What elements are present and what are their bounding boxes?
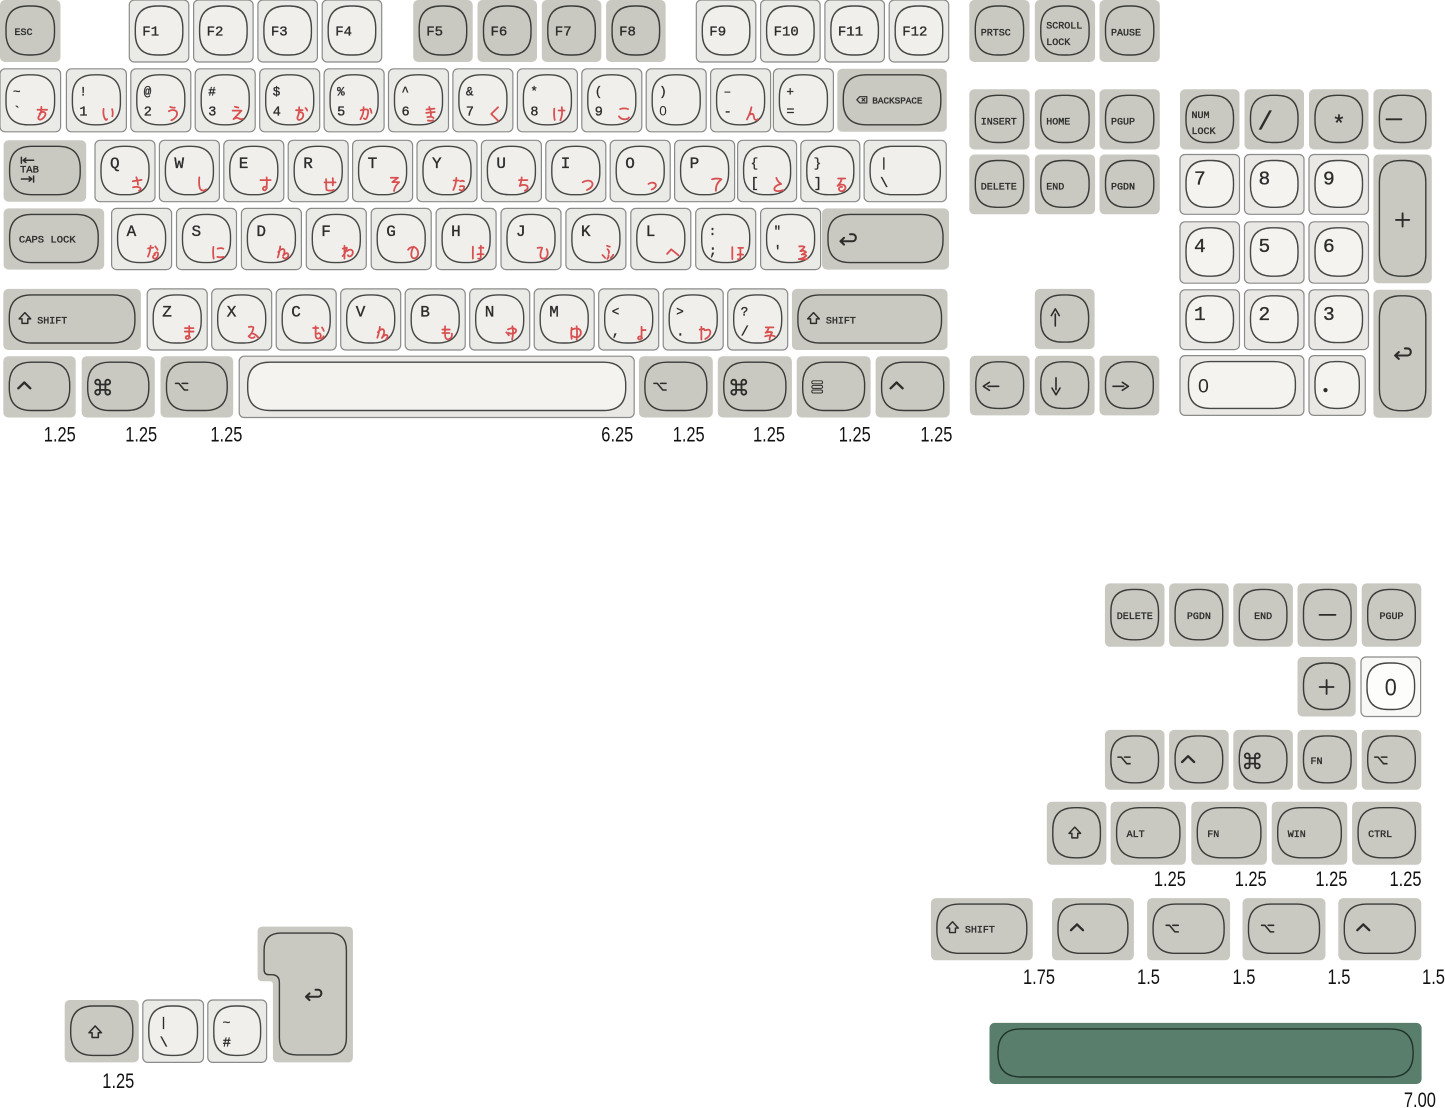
svg-text:4: 4	[273, 105, 281, 120]
svg-text:ALT: ALT	[1127, 830, 1145, 841]
svg-text:LOCK: LOCK	[1046, 38, 1070, 49]
svg-text:O: O	[625, 155, 635, 173]
svg-text:R: R	[303, 155, 313, 173]
svg-text:PAUSE: PAUSE	[1111, 29, 1141, 40]
svg-text:S: S	[192, 223, 202, 241]
svg-text:F5: F5	[426, 25, 443, 41]
svg-text:;: ;	[709, 245, 717, 260]
svg-text:F4: F4	[335, 25, 352, 41]
svg-text:SHIFT: SHIFT	[826, 317, 856, 328]
svg-text:~: ~	[13, 85, 21, 99]
svg-text:-: -	[724, 105, 732, 120]
svg-text:FN: FN	[1207, 830, 1219, 841]
svg-text:LOCK: LOCK	[1192, 127, 1216, 138]
svg-text:J: J	[516, 223, 526, 241]
svg-text:F12: F12	[902, 25, 927, 41]
svg-text:[: [	[751, 177, 759, 192]
svg-text:]: ]	[814, 177, 822, 192]
svg-text:V: V	[356, 303, 366, 321]
svg-text:N: N	[485, 303, 495, 321]
svg-text:5: 5	[1259, 236, 1271, 258]
svg-text:1.25: 1.25	[753, 424, 785, 447]
svg-text:F1: F1	[142, 25, 159, 41]
svg-text:1.25: 1.25	[210, 424, 242, 447]
svg-text:": "	[774, 225, 782, 239]
svg-text:PGDN: PGDN	[1111, 183, 1135, 194]
svg-text:P: P	[690, 155, 700, 173]
svg-text:3: 3	[1323, 304, 1335, 326]
svg-text:1.5: 1.5	[1328, 966, 1351, 989]
svg-text:C: C	[291, 303, 301, 321]
svg-text:U: U	[496, 155, 506, 173]
svg-text:9: 9	[1323, 169, 1335, 191]
svg-text:7: 7	[466, 105, 474, 120]
svg-text:+: +	[786, 85, 794, 99]
svg-text:1.25: 1.25	[920, 424, 952, 447]
svg-text:1.25: 1.25	[673, 424, 705, 447]
svg-text:PGDN: PGDN	[1187, 612, 1211, 623]
svg-text:DELETE: DELETE	[981, 183, 1017, 194]
svg-text:6: 6	[402, 105, 410, 120]
svg-text:H: H	[451, 223, 461, 241]
svg-text:D: D	[256, 223, 266, 241]
svg-text:<: <	[612, 305, 620, 319]
svg-text:Z: Z	[162, 303, 172, 321]
svg-text:1.25: 1.25	[1315, 868, 1347, 891]
svg-text:PRTSC: PRTSC	[981, 29, 1011, 40]
svg-text:1.5: 1.5	[1233, 966, 1256, 989]
svg-text:\: \	[880, 177, 888, 192]
svg-text:@: @	[144, 85, 152, 99]
svg-text:,: ,	[612, 325, 620, 340]
svg-text:0: 0	[1198, 375, 1209, 397]
svg-text:}: }	[814, 157, 822, 171]
svg-text:\: \	[160, 1037, 168, 1052]
svg-text:F8: F8	[619, 25, 636, 41]
svg-text:Y: Y	[432, 155, 442, 173]
svg-text:1: 1	[79, 105, 87, 120]
svg-text:~: ~	[223, 1017, 231, 1031]
svg-text:FN: FN	[1311, 757, 1323, 768]
svg-text:SHIFT: SHIFT	[37, 317, 67, 328]
svg-text:NUM: NUM	[1192, 111, 1210, 122]
svg-text:CAPS LOCK: CAPS LOCK	[19, 234, 76, 246]
svg-text:): )	[659, 85, 667, 99]
svg-text:`: `	[13, 105, 21, 120]
svg-text:0: 0	[659, 103, 667, 118]
svg-text:E: E	[239, 155, 249, 173]
svg-text:7.00: 7.00	[1404, 1089, 1436, 1108]
svg-text:PGUP: PGUP	[1111, 117, 1135, 128]
svg-text:ESC: ESC	[15, 28, 33, 39]
svg-text:?: ?	[741, 305, 749, 319]
svg-text:L: L	[646, 223, 656, 241]
svg-text:TAB: TAB	[20, 165, 39, 177]
svg-text:8: 8	[530, 105, 538, 120]
svg-text:1.25: 1.25	[44, 424, 76, 447]
svg-text:1.5: 1.5	[1137, 966, 1160, 989]
svg-text:&: &	[466, 85, 474, 99]
svg-text:F3: F3	[271, 25, 288, 41]
svg-text:1.25: 1.25	[125, 424, 157, 447]
svg-text:9: 9	[595, 105, 603, 120]
svg-text:END: END	[1046, 183, 1064, 194]
svg-text:T: T	[368, 155, 378, 173]
svg-text:SHIFT: SHIFT	[965, 926, 995, 937]
svg-text:INSERT: INSERT	[981, 117, 1017, 128]
svg-text:6: 6	[1323, 236, 1335, 258]
svg-text:|: |	[880, 157, 888, 171]
svg-text:1.25: 1.25	[1390, 868, 1422, 891]
svg-text:5: 5	[337, 105, 345, 120]
svg-text:Q: Q	[110, 155, 120, 173]
svg-text:0: 0	[1385, 675, 1397, 702]
svg-text:2: 2	[1259, 304, 1271, 326]
svg-text:6.25: 6.25	[601, 424, 633, 447]
svg-text:CTRL: CTRL	[1368, 830, 1392, 841]
svg-text:W: W	[174, 155, 184, 173]
svg-text:END: END	[1254, 612, 1272, 623]
svg-text:1.75: 1.75	[1023, 966, 1055, 989]
svg-text:1.25: 1.25	[839, 424, 871, 447]
svg-text:': '	[774, 245, 782, 260]
svg-text:^: ^	[402, 85, 410, 99]
svg-text:F11: F11	[838, 25, 863, 41]
svg-text:4: 4	[1194, 236, 1206, 258]
svg-text:.: .	[676, 325, 684, 340]
svg-text:%: %	[337, 85, 345, 99]
svg-text:*: *	[1332, 112, 1346, 138]
svg-text:(: (	[595, 85, 603, 99]
svg-text:{: {	[751, 157, 759, 171]
svg-text:8: 8	[1259, 169, 1271, 191]
svg-text:|: |	[160, 1017, 168, 1031]
svg-text:SCROLL: SCROLL	[1046, 22, 1082, 33]
svg-text:/: /	[1258, 107, 1274, 137]
svg-text:I: I	[561, 155, 571, 173]
svg-text:>: >	[676, 305, 684, 319]
svg-text:#: #	[223, 1037, 231, 1052]
svg-text:PGUP: PGUP	[1379, 612, 1403, 623]
svg-text:2: 2	[144, 105, 152, 120]
svg-text:–: –	[724, 85, 732, 99]
svg-text:X: X	[227, 303, 237, 321]
svg-text:F2: F2	[207, 25, 224, 41]
svg-text:F6: F6	[491, 25, 508, 41]
svg-text:HOME: HOME	[1046, 117, 1070, 128]
svg-text:3: 3	[208, 105, 216, 120]
svg-text:DELETE: DELETE	[1117, 612, 1153, 623]
svg-text:*: *	[530, 85, 538, 99]
svg-text:$: $	[273, 85, 281, 99]
svg-text:WIN: WIN	[1288, 830, 1306, 841]
svg-text:=: =	[786, 105, 794, 120]
svg-text:7: 7	[1194, 169, 1206, 191]
svg-text:F10: F10	[774, 25, 799, 41]
svg-text:#: #	[208, 85, 216, 99]
svg-text:F9: F9	[709, 25, 726, 41]
svg-text:G: G	[386, 223, 396, 241]
svg-text:K: K	[581, 223, 591, 241]
svg-text:1: 1	[1194, 304, 1206, 326]
svg-text:1.25: 1.25	[1154, 868, 1186, 891]
svg-text:/: /	[741, 325, 749, 340]
svg-text:1.5: 1.5	[1422, 966, 1445, 989]
svg-text:A: A	[127, 223, 137, 241]
svg-text:1.25: 1.25	[1235, 868, 1267, 891]
svg-text::: :	[709, 225, 717, 239]
svg-text:!: !	[79, 85, 87, 99]
svg-text:M: M	[549, 303, 559, 321]
svg-text:1.25: 1.25	[102, 1070, 134, 1093]
svg-text:BACKSPACE: BACKSPACE	[872, 95, 923, 106]
svg-text:F: F	[321, 223, 331, 241]
svg-text:F7: F7	[555, 25, 572, 41]
svg-text:B: B	[420, 303, 430, 321]
